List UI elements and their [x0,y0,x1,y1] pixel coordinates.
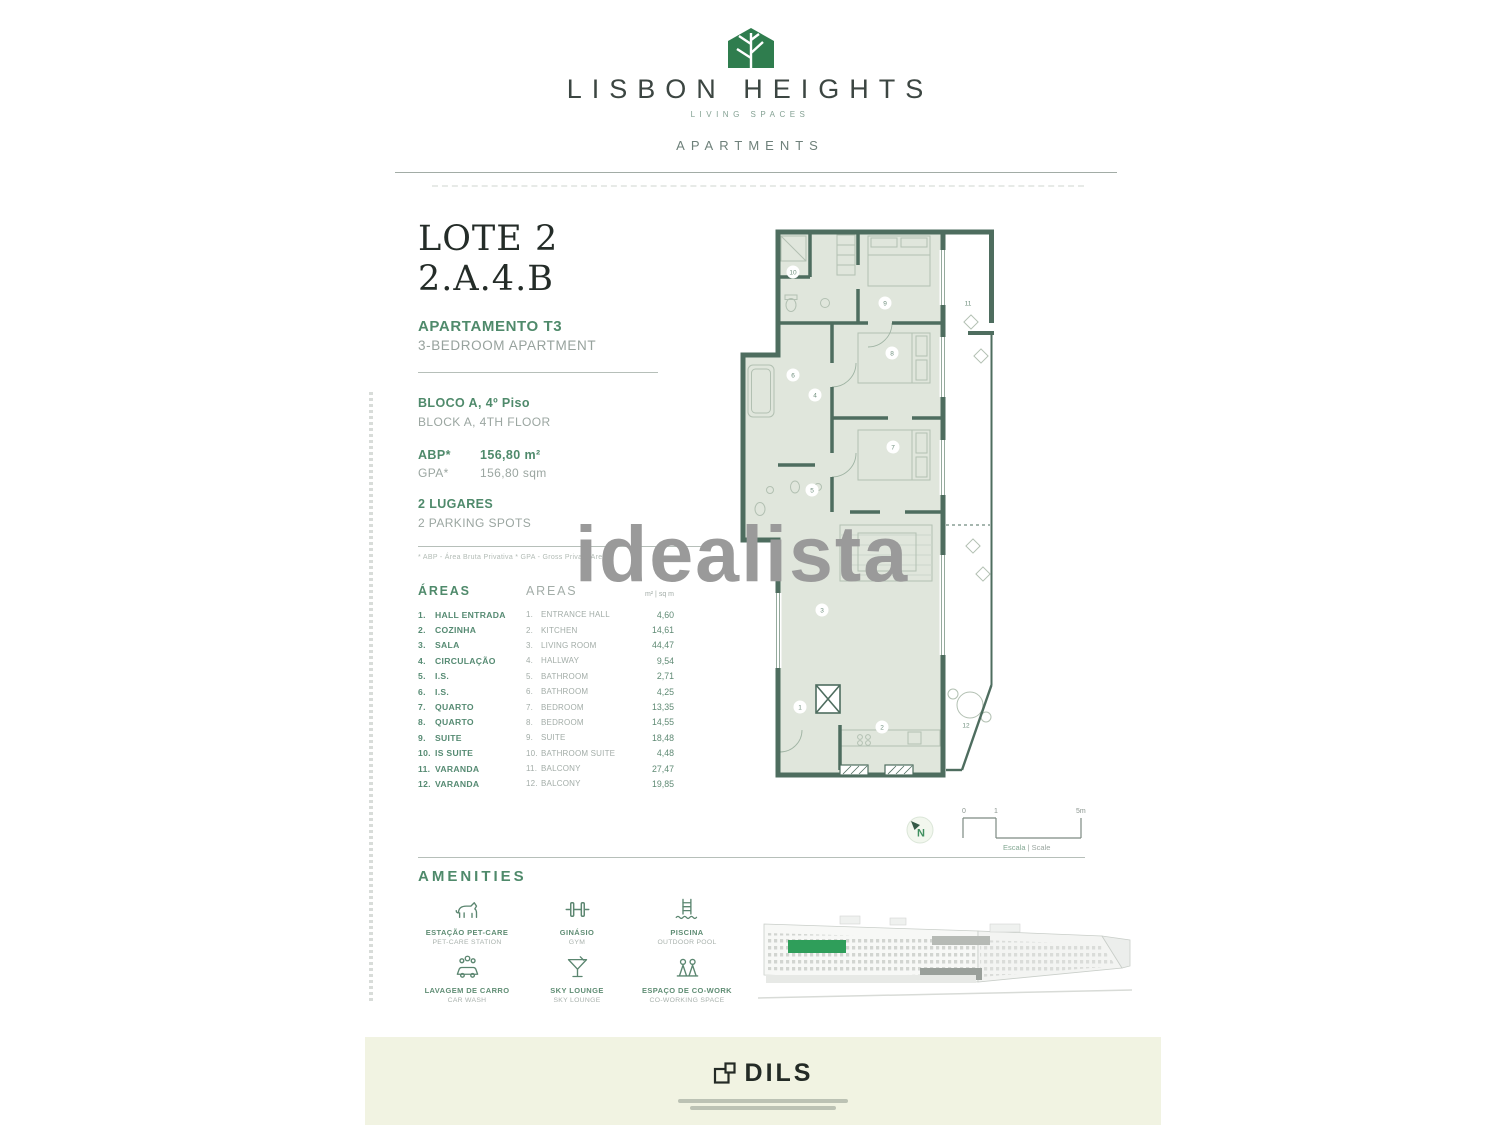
area-value: 9,54 [641,656,674,666]
gpa-value: 156,80 sqm [480,466,547,480]
amenity-item: GINÁSIOGYM [522,896,632,946]
area-row: 11.VARANDA11.BALCONY27,47 [418,761,674,776]
area-num-pt: 6. [418,687,435,697]
room-number: 5 [810,487,814,494]
area-name-en: BATHROOM [541,672,641,681]
area-value: 27,47 [641,764,674,774]
brand-name: LISBON HEIGHTS [0,74,1500,105]
block-label-pt: BLOCO A, 4º Piso [418,396,530,410]
room-number: 9 [883,300,887,307]
area-summary: ABP* 156,80 m² GPA* 156,80 sqm [418,448,547,480]
room-number: 7 [891,444,895,451]
amenity-label-en: CO-WORKING SPACE [650,997,725,1004]
header-divider [395,172,1117,173]
brand-subtitle: APARTMENTS [0,138,1500,153]
header-dashed-divider [432,185,1084,187]
abp-label: ABP* [418,448,480,462]
area-name-pt: I.S. [435,671,526,681]
apartment-type-pt: APARTAMENTO T3 [418,318,562,335]
area-value: 14,61 [641,625,674,635]
amenity-item: LAVAGEM DE CARROCAR WASH [412,954,522,1004]
amenities-grid: ESTAÇÃO PET-CAREPET-CARE STATIONGINÁSIOG… [412,896,742,1004]
amenity-item: ESTAÇÃO PET-CAREPET-CARE STATION [412,896,522,946]
room-number: 2 [880,724,884,731]
amenity-label-en: CAR WASH [448,997,487,1004]
room-number: 3 [820,607,824,614]
area-num-pt: 8. [418,717,435,727]
area-num-en: 6. [526,687,541,696]
area-name-pt: QUARTO [435,717,526,727]
room-number: 8 [890,350,894,357]
gym-icon [564,896,591,923]
dils-brand-name: DILS [745,1059,814,1088]
area-name-en: ENTRANCE HALL [541,610,641,619]
area-name-en: BEDROOM [541,703,641,712]
areas-header-pt: ÁREAS [418,584,526,598]
footer-address-line [365,1099,1161,1103]
area-num-pt: 2. [418,625,435,635]
area-num-pt: 7. [418,702,435,712]
area-num-pt: 11. [418,764,435,774]
area-num-pt: 4. [418,656,435,666]
pet-care-icon [454,896,481,923]
area-value: 4,48 [641,748,674,758]
area-name-pt: COZINHA [435,625,526,635]
area-value: 4,25 [641,687,674,697]
lisbon-heights-logo-icon [728,26,774,74]
areas-table: ÁREAS AREAS m² | sq m 1.HALL ENTRADA1.EN… [418,584,674,792]
amenity-label-pt: SKY LOUNGE [550,986,603,995]
amenity-item: ESPAÇO DE CO-WORKCO-WORKING SPACE [632,954,742,1004]
footer-band: DILS [365,1037,1161,1125]
area-num-en: 5. [526,672,541,681]
parking-en: 2 PARKING SPOTS [418,516,531,530]
area-row: 2.COZINHA2.KITCHEN14,61 [418,622,674,637]
area-name-en: BALCONY [541,764,641,773]
room-number: 11 [965,300,972,307]
area-num-pt: 5. [418,671,435,681]
building-banner [788,940,846,953]
area-num-pt: 9. [418,733,435,743]
area-value: 44,47 [641,640,674,650]
area-name-pt: HALL ENTRADA [435,610,526,620]
area-value: 2,71 [641,671,674,681]
abp-value: 156,80 m² [480,448,547,462]
amenity-label-en: OUTDOOR POOL [657,939,716,946]
area-num-en: 3. [526,641,541,650]
room-number: 1 [798,704,802,711]
amenity-label-en: GYM [569,939,585,946]
dils-logo: DILS [365,1059,1161,1088]
area-num-en: 11. [526,764,541,773]
amenity-item: PISCINAOUTDOOR POOL [632,896,742,946]
area-row: 8.QUARTO8.BEDROOM14,55 [418,715,674,730]
area-row: 6.I.S.6.BATHROOM4,25 [418,684,674,699]
area-num-en: 4. [526,656,541,665]
area-value: 4,60 [641,610,674,620]
area-row: 9.SUITE9.SUITE18,48 [418,730,674,745]
pool-icon [674,896,701,923]
amenity-label-en: PET-CARE STATION [432,939,501,946]
area-row: 7.QUARTO7.BEDROOM13,35 [418,699,674,714]
parking-pt: 2 LUGARES [418,497,493,511]
amenity-label-pt: PISCINA [670,928,703,937]
area-row: 12.VARANDA12.BALCONY19,85 [418,776,674,791]
amenities-heading: AMENITIES [418,868,527,885]
area-name-en: BATHROOM SUITE [541,749,641,758]
title-divider [418,372,658,373]
area-row: 10.IS SUITE10.BATHROOM SUITE4,48 [418,746,674,761]
dils-logo-icon [713,1062,736,1085]
amenities-divider [418,857,1085,858]
floor-plan: 123456789101112 [740,225,1010,779]
area-value: 14,55 [641,717,674,727]
apartment-type-en: 3-BEDROOM APARTMENT [418,338,596,353]
area-num-pt: 3. [418,640,435,650]
co-work-icon [674,954,701,981]
area-num-pt: 12. [418,779,435,789]
footer-address-line [365,1106,1161,1110]
area-name-en: HALLWAY [541,656,641,665]
sky-lounge-icon [564,954,591,981]
area-num-en: 7. [526,703,541,712]
area-row: 3.SALA3.LIVING ROOM44,47 [418,638,674,653]
lot-title: LOTE 2 2.A.4.B [418,220,558,300]
north-arrow: N [905,815,935,845]
floor-plan-drawing: 123456789101112 [740,225,1010,779]
room-number: 12 [962,722,970,729]
area-name-pt: SALA [435,640,526,650]
area-name-en: BALCONY [541,779,641,788]
unit-code: 2.A.4.B [418,260,558,300]
area-row: 1.HALL ENTRADA1.ENTRANCE HALL4,60 [418,607,674,622]
area-num-en: 8. [526,718,541,727]
block-label-en: BLOCK A, 4TH FLOOR [418,415,551,429]
north-letter: N [917,828,925,840]
scale-tick-0: 0 [962,808,966,815]
area-name-en: KITCHEN [541,626,641,635]
room-number: 6 [791,372,795,379]
scale-tick-5m: 5m [1076,808,1086,815]
area-name-pt: SUITE [435,733,526,743]
area-num-pt: 1. [418,610,435,620]
area-name-pt: VARANDA [435,764,526,774]
area-name-pt: I.S. [435,687,526,697]
amenity-label-pt: GINÁSIO [560,928,594,937]
area-num-en: 1. [526,610,541,619]
area-num-en: 12. [526,779,541,788]
building-render [750,876,1140,1016]
room-number: 4 [813,392,817,399]
brand-tagline: LIVING SPACES [0,110,1500,119]
car-wash-icon [454,954,481,981]
area-name-en: BEDROOM [541,718,641,727]
brochure-page: { "header": { "brand": "LISBON HEIGHTS",… [0,0,1500,1125]
scale-tick-1: 1 [994,808,998,815]
scale-bar: 0 1 5m Escala | Scale [958,804,1090,854]
amenity-label-pt: ESPAÇO DE CO-WORK [642,986,732,995]
area-name-en: BATHROOM [541,687,641,696]
area-num-en: 9. [526,733,541,742]
scale-caption: Escala | Scale [1003,843,1050,852]
area-num-en: 10. [526,749,541,758]
lot-number: LOTE 2 [418,220,558,260]
amenity-item: SKY LOUNGESKY LOUNGE [522,954,632,1004]
area-num-pt: 10. [418,748,435,758]
areas-table-body: 1.HALL ENTRADA1.ENTRANCE HALL4,602.COZIN… [418,607,674,792]
amenity-label-en: SKY LOUNGE [553,997,600,1004]
area-name-pt: CIRCULAÇÃO [435,656,526,666]
vertical-disclaimer-text [369,392,373,1004]
area-name-pt: VARANDA [435,779,526,789]
area-value: 13,35 [641,702,674,712]
area-row: 5.I.S.5.BATHROOM2,71 [418,669,674,684]
area-row: 4.CIRCULAÇÃO4.HALLWAY9,54 [418,653,674,668]
area-value: 19,85 [641,779,674,789]
area-num-en: 2. [526,626,541,635]
area-name-en: LIVING ROOM [541,641,641,650]
gpa-label: GPA* [418,466,480,480]
area-name-pt: QUARTO [435,702,526,712]
amenity-label-pt: LAVAGEM DE CARRO [425,986,510,995]
amenity-label-pt: ESTAÇÃO PET-CARE [426,928,509,937]
area-value: 18,48 [641,733,674,743]
idealista-watermark: idealista [575,514,909,593]
area-name-pt: IS SUITE [435,748,526,758]
room-number: 10 [789,269,797,276]
area-name-en: SUITE [541,733,641,742]
